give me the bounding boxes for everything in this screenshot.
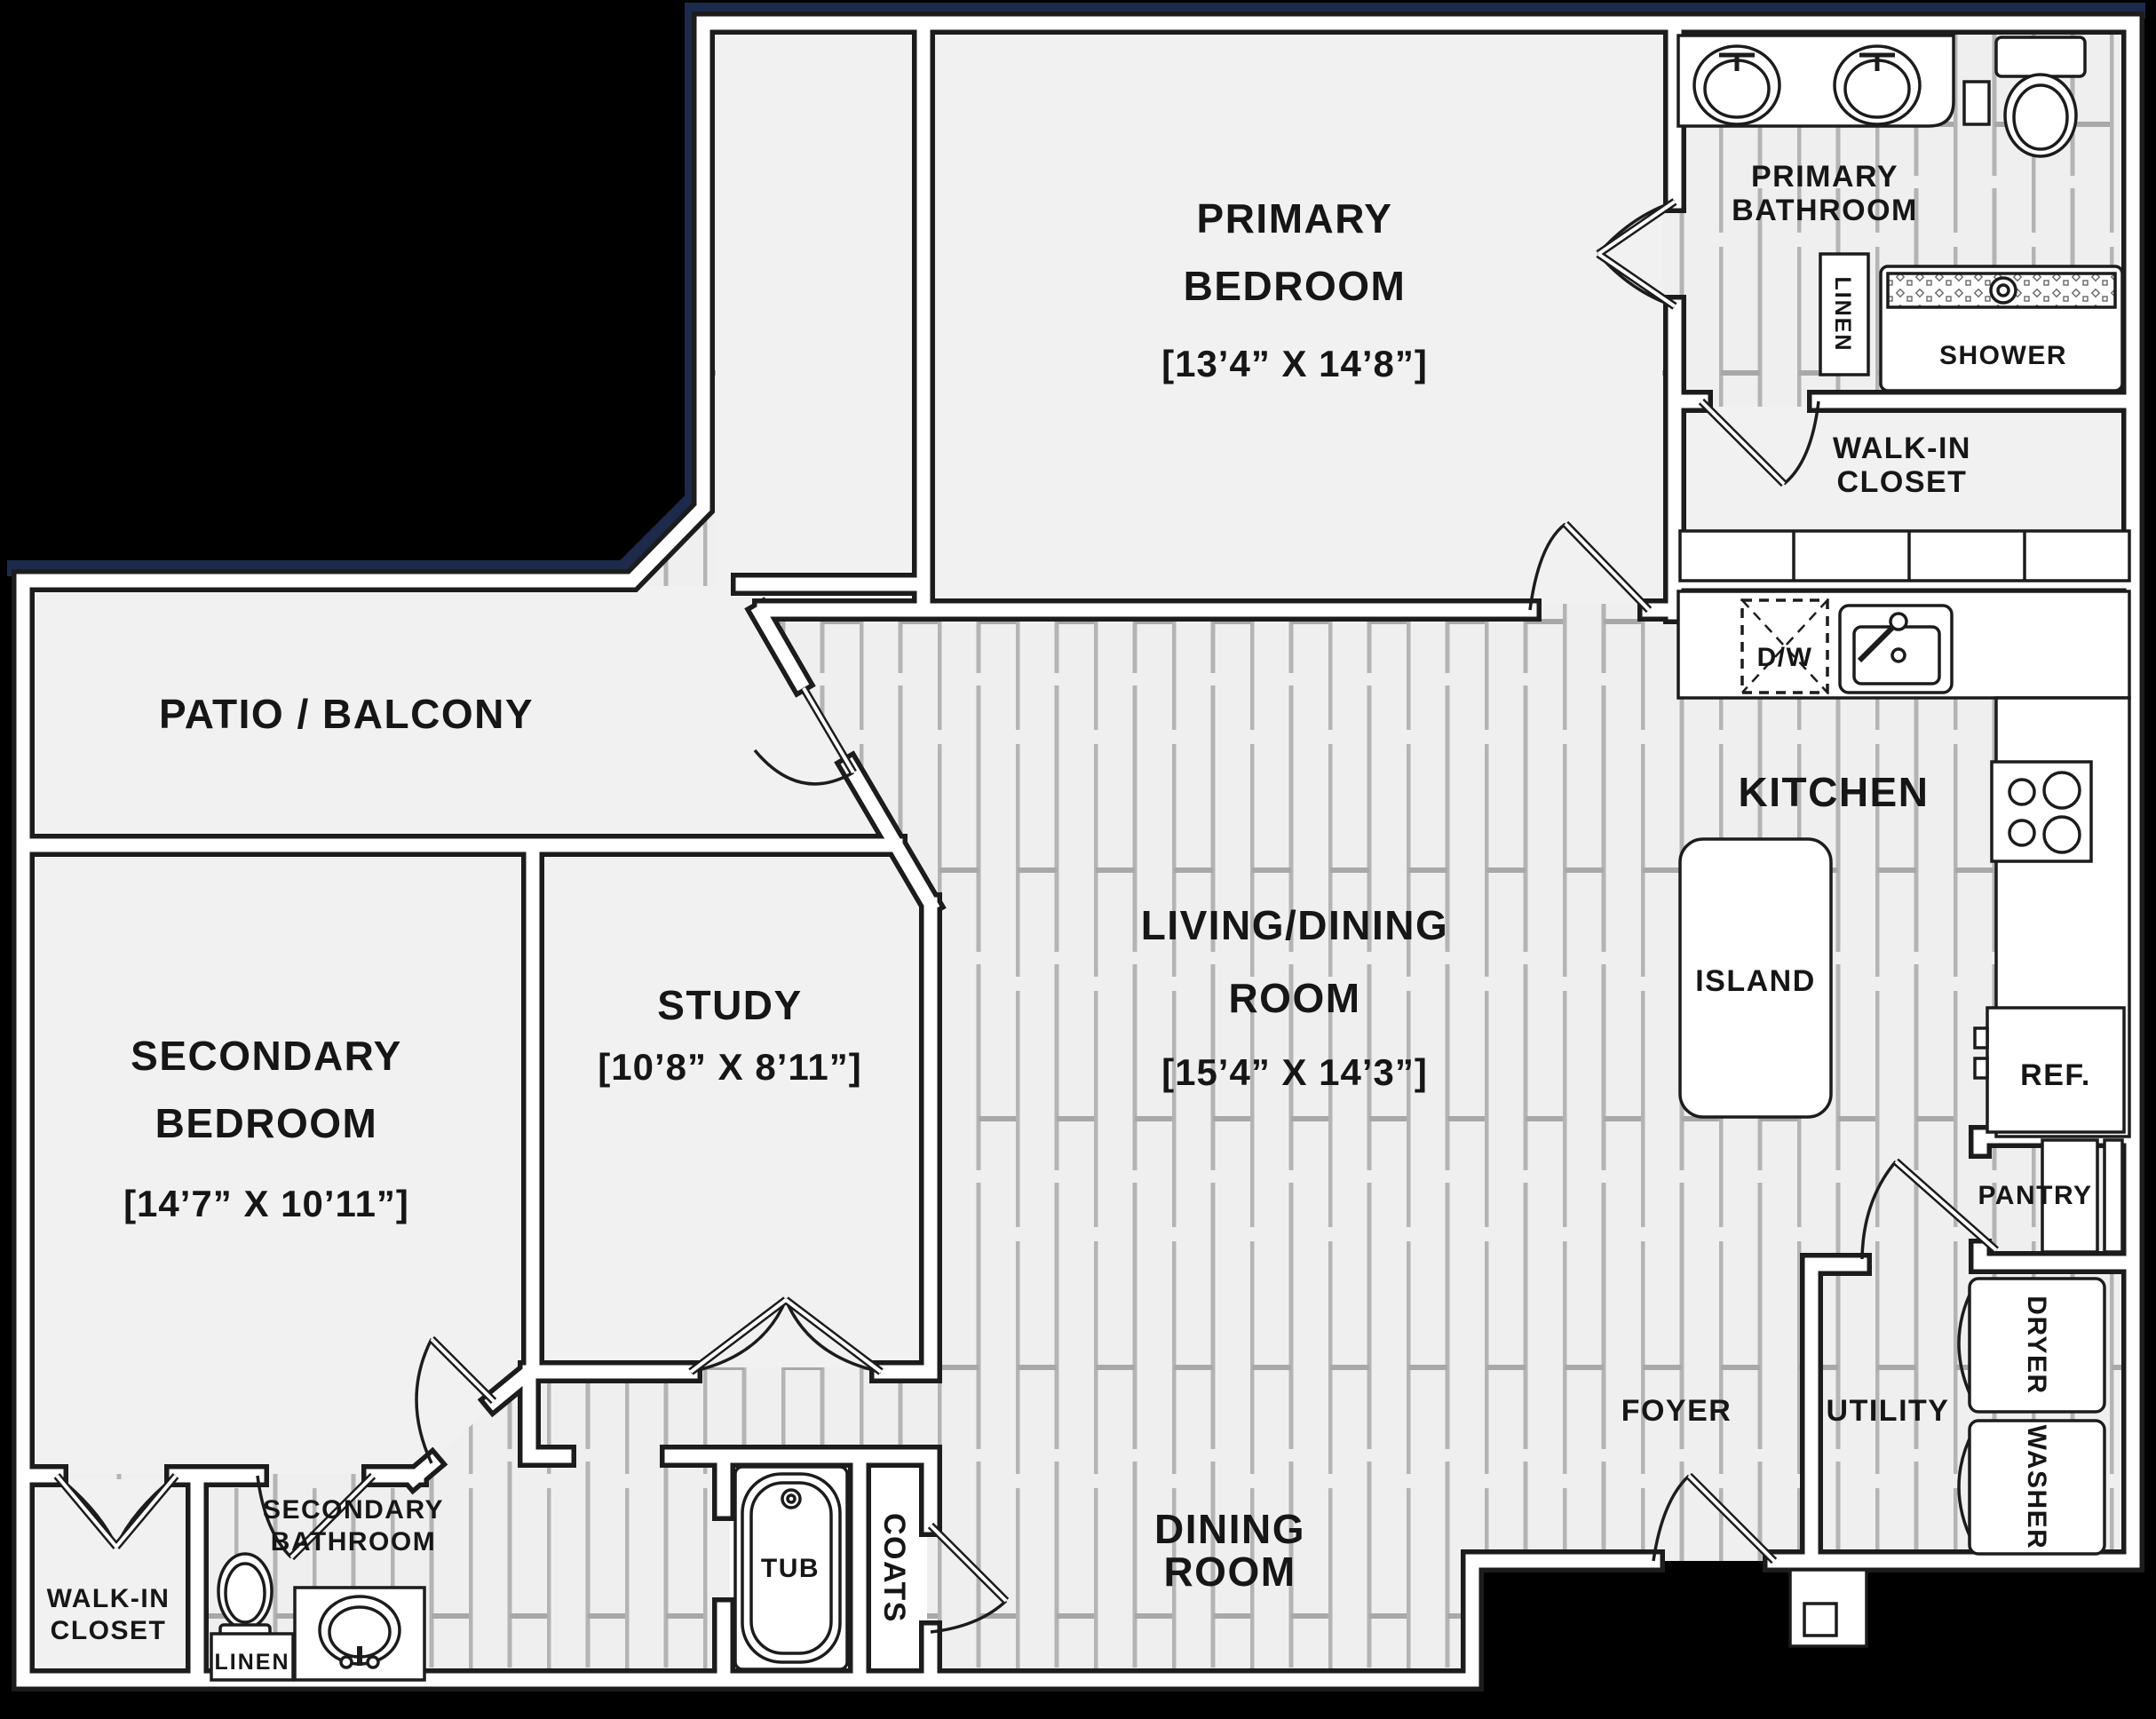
primary-closet-shelf — [1680, 531, 2129, 581]
study-dims: [10’8” X 8’11”] — [598, 1046, 862, 1088]
dining-room-label-2: ROOM — [1163, 1549, 1296, 1595]
primary-bedroom-dims: [13’4” X 14’8”] — [1161, 343, 1428, 384]
floor-plan-page: PATIO / BALCONY PRIMARY BEDROOM [13’4” X… — [0, 0, 2156, 1719]
secondary-bedroom-dims: [14’7” X 10’11”] — [123, 1183, 409, 1224]
secondary-bathroom-label-1: SECONDARY — [263, 1495, 444, 1525]
primary-bathroom-label-1: PRIMARY — [1751, 160, 1898, 194]
island-label: ISLAND — [1695, 964, 1816, 998]
refrigerator-handle-2 — [1975, 1058, 1987, 1078]
stove-burner-1 — [2009, 780, 2034, 804]
study-label: STUDY — [657, 982, 802, 1028]
refrigerator-handle-1 — [1975, 1028, 1987, 1048]
refrigerator-label: REF. — [2020, 1058, 2091, 1092]
foyer-label: FOYER — [1621, 1394, 1732, 1428]
dining-room-label-1: DINING — [1154, 1506, 1305, 1552]
secondary-bedroom-label-1: SECONDARY — [131, 1033, 402, 1079]
linen-primary-label: LINEN — [1830, 277, 1855, 353]
living-dining-dims: [15’4” X 14’3”] — [1161, 1051, 1428, 1093]
secondary-closet-label-2: CLOSET — [51, 1616, 167, 1645]
primary-closet-label-2: CLOSET — [1837, 465, 1968, 499]
living-dining-label-2: ROOM — [1228, 975, 1360, 1021]
stove-burner-2 — [2009, 820, 2034, 845]
entry-threshold-step — [1804, 1604, 1836, 1636]
tub-label: TUB — [761, 1554, 820, 1583]
utility-label: UTILITY — [1827, 1394, 1950, 1428]
primary-toilet-tank — [1996, 37, 2085, 76]
secondary-bathroom-label-2: BATHROOM — [271, 1527, 436, 1557]
primary-closet-label-1: WALK-IN — [1833, 432, 1971, 465]
shower-label: SHOWER — [1939, 341, 2067, 370]
coats-label: COATS — [877, 1513, 911, 1623]
primary-bedroom-label-2: BEDROOM — [1184, 263, 1407, 309]
room-patio-upper-floor — [716, 32, 918, 604]
primary-bathroom-label-2: BATHROOM — [1732, 194, 1918, 227]
stove-burner-3 — [2044, 772, 2080, 808]
room-secondary-bedroom-floor — [27, 851, 529, 1474]
linen-secondary-label: LINEN — [215, 1650, 290, 1675]
pantry-shelf-narrow — [2104, 1140, 2122, 1252]
room-study-floor — [536, 851, 927, 1367]
washer-label: WASHER — [2022, 1425, 2051, 1550]
vanity-side-wall — [1964, 82, 1989, 124]
dishwasher-label: D/W — [1757, 643, 1813, 672]
pantry-label: PANTRY — [1978, 1181, 2093, 1210]
secondary-closet-label-1: WALK-IN — [47, 1584, 170, 1613]
room-primary-bedroom-floor — [927, 30, 1662, 604]
living-dining-label-1: LIVING/DINING — [1141, 902, 1449, 948]
stove-burner-4 — [2044, 817, 2080, 852]
secondary-bedroom-label-2: BEDROOM — [155, 1100, 378, 1146]
room-secondary-closet-floor — [27, 1479, 194, 1676]
dryer-label: DRYER — [2022, 1295, 2051, 1394]
patio-label: PATIO / BALCONY — [159, 691, 534, 737]
floor-plan-svg: PATIO / BALCONY PRIMARY BEDROOM [13’4” X… — [0, 0, 2156, 1719]
primary-bedroom-label-1: PRIMARY — [1197, 195, 1393, 242]
kitchen-label: KITCHEN — [1739, 769, 1930, 815]
